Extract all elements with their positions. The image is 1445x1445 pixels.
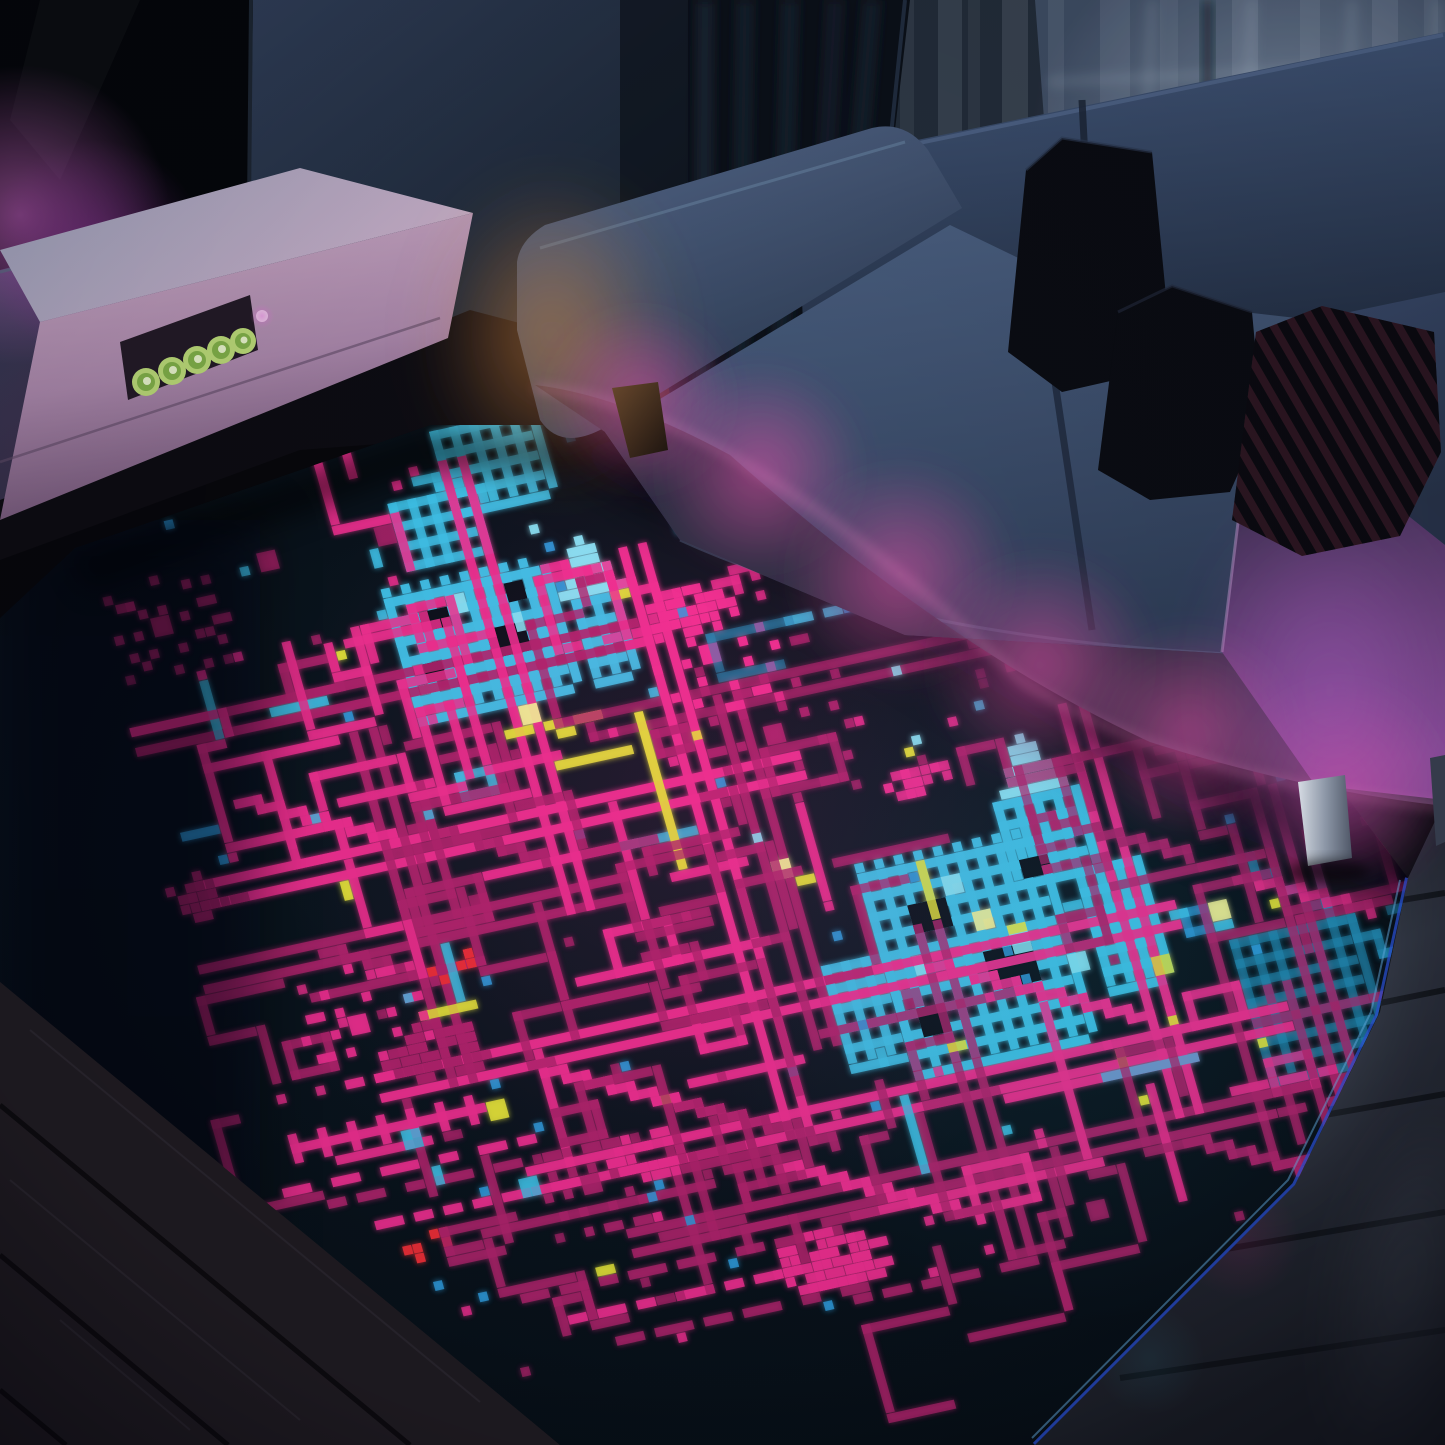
scene-canvas bbox=[0, 0, 1445, 1445]
living-room-photo bbox=[0, 0, 1445, 1445]
vignette bbox=[0, 0, 1445, 1445]
